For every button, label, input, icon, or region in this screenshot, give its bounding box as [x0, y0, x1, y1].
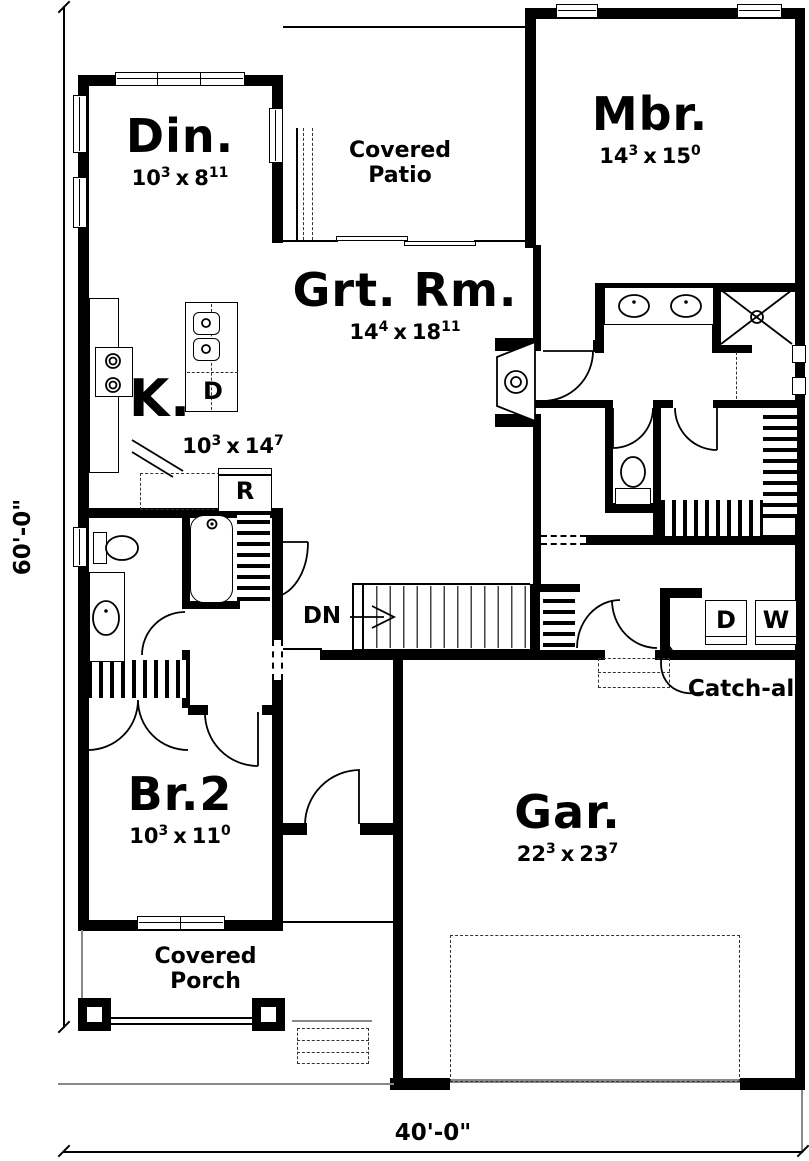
great-room-label: Grt. Rm. 144x1811 [272, 266, 538, 344]
faucet-dot [104, 609, 108, 613]
dining-room-dimensions: 103x811 [95, 165, 265, 190]
door-arc [543, 351, 593, 401]
stairs-dn-label: DN [298, 603, 346, 629]
dryer-label: D [705, 606, 747, 634]
height-dimension-label: 60'-0" [10, 482, 36, 592]
door-arc [142, 612, 185, 655]
washer-label: W [755, 606, 797, 634]
width-dimension-label: 40'-0" [358, 1120, 508, 1146]
covered-patio-label: Covered Patio [325, 138, 475, 189]
sink-drain [202, 345, 210, 353]
catchall-label: Catch-all [680, 676, 809, 702]
bedroom2-dimensions: 103x110 [100, 823, 260, 848]
kitchen-dimensions: 103x147 [158, 428, 308, 458]
door-arc [612, 600, 657, 648]
sink-oval [671, 295, 701, 317]
front-door-arc [305, 770, 360, 825]
door-arc [577, 600, 620, 648]
master-bedroom-label: Mbr. 143x150 [555, 90, 745, 168]
door-arc [675, 408, 717, 450]
toilet-bowl [106, 536, 138, 560]
burner [106, 354, 120, 368]
garage-name: Gar. [470, 788, 665, 836]
dining-room-label: Din. 103x811 [95, 112, 265, 190]
faucet-dot [684, 300, 688, 304]
door-arc [272, 542, 308, 597]
stairs-down-arrow [350, 606, 394, 628]
closet-door-arcs [88, 700, 188, 750]
island-dishwasher-label: D [192, 377, 234, 405]
drain-dot [755, 315, 758, 318]
master-bedroom-dimensions: 143x150 [555, 143, 745, 168]
garage-label: Gar. 223x237 [470, 788, 665, 866]
bedroom2-label: Br.2 103x110 [100, 770, 260, 848]
faucet-dot [632, 300, 636, 304]
faucet-dot [210, 522, 213, 525]
sink-oval [619, 295, 649, 317]
door-arc [613, 408, 653, 448]
door-arc [205, 712, 258, 766]
fireplace-symbol [497, 342, 535, 421]
covered-porch-label: Covered Porch [128, 944, 283, 995]
refrigerator-label: R [222, 477, 268, 505]
sink-drain [202, 319, 210, 327]
floor-plan: Din. 103x811 Covered Patio Mbr. 143x150 … [0, 0, 809, 1161]
great-room-dimensions: 144x1811 [272, 319, 538, 344]
burner [110, 358, 117, 365]
dining-room-name: Din. [95, 112, 265, 160]
great-room-name: Grt. Rm. [272, 266, 538, 314]
garage-dimensions: 223x237 [470, 841, 665, 866]
master-bedroom-name: Mbr. [555, 90, 745, 138]
toilet-bowl [621, 457, 645, 487]
sink-oval [93, 601, 119, 635]
bedroom2-name: Br.2 [100, 770, 260, 818]
